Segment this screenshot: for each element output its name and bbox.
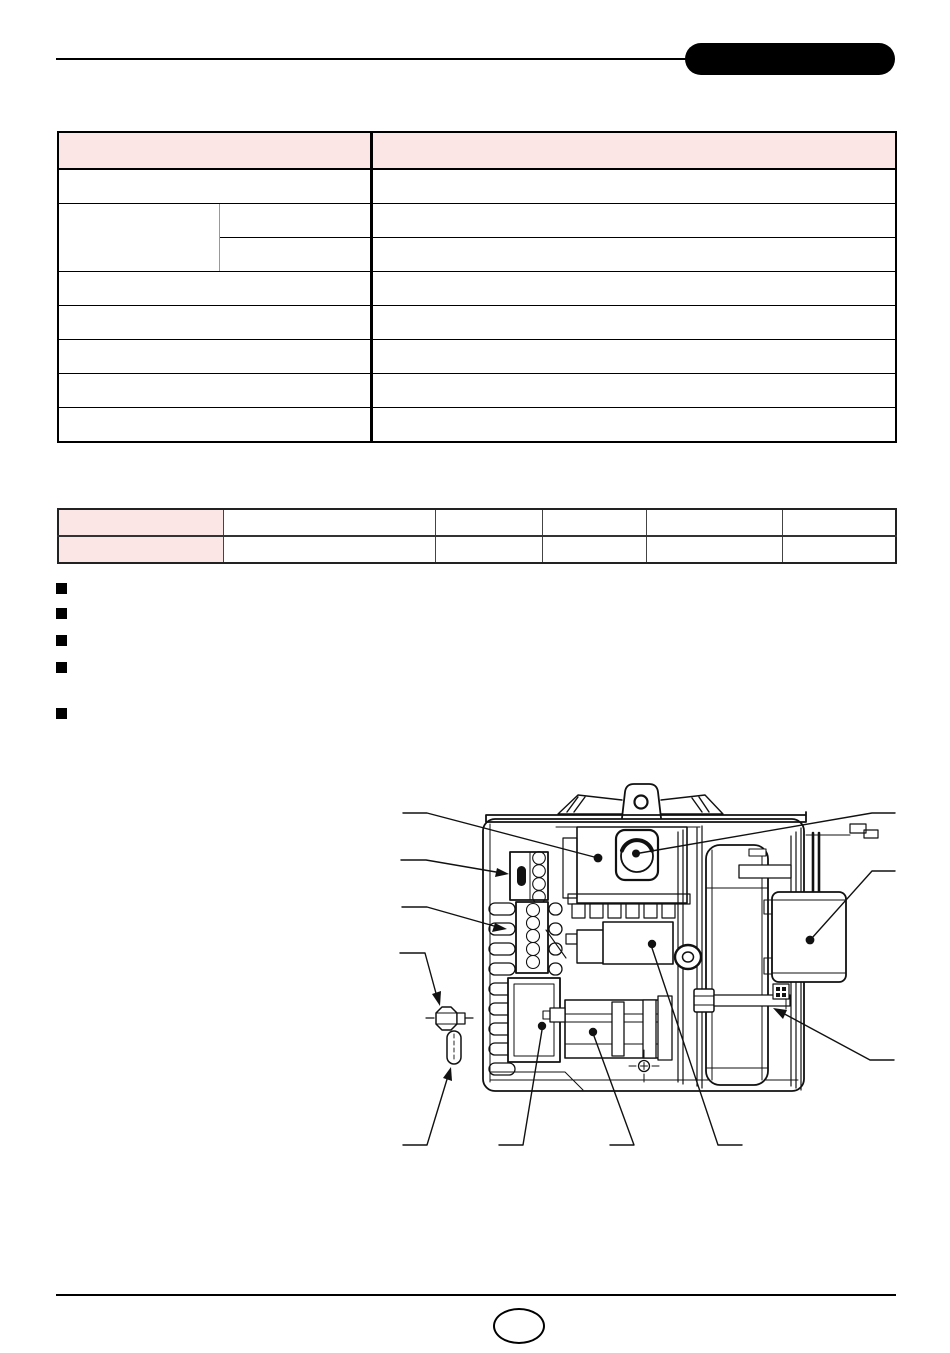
motor-cylinder <box>543 996 672 1060</box>
square-bullet-icon <box>56 583 67 594</box>
table-row <box>58 340 896 374</box>
mounting-bracket <box>558 784 723 818</box>
motor-top-box <box>563 827 687 903</box>
device-exploded-diagram <box>390 770 910 1160</box>
table-row <box>58 509 896 536</box>
spec-value-cell <box>371 306 896 340</box>
model-cell <box>542 509 646 536</box>
spec-value-cell <box>371 238 896 272</box>
table-row <box>58 272 896 306</box>
terminal-block-upper <box>510 852 548 904</box>
manual-page <box>0 0 950 1353</box>
model-cell <box>782 536 896 563</box>
spec-table <box>57 131 897 443</box>
table-row <box>58 204 896 238</box>
spec-value-cell <box>371 374 896 408</box>
footer-rule <box>56 1294 896 1296</box>
spec-group-label-cell <box>58 204 219 272</box>
list-item <box>56 662 77 673</box>
loose-capsule <box>447 1031 461 1064</box>
spec-header-left <box>58 132 371 169</box>
callout-line <box>401 860 496 872</box>
list-item <box>56 708 77 719</box>
callout-dot <box>538 1022 546 1030</box>
callout-arrowhead <box>773 1008 787 1019</box>
callout-arrowhead <box>495 868 509 877</box>
spec-value-cell <box>371 340 896 374</box>
table-row <box>58 169 896 204</box>
model-cell <box>646 509 782 536</box>
loose-bolt <box>426 1007 473 1030</box>
spec-value-cell <box>371 272 896 306</box>
callout-dot <box>589 1028 597 1036</box>
list-item <box>56 608 77 619</box>
callout-arrowhead <box>443 1067 452 1081</box>
top-right-fasteners <box>806 824 878 838</box>
table-row <box>58 408 896 443</box>
spec-sub-label-cell <box>219 238 371 272</box>
spec-value-cell <box>371 204 896 238</box>
spec-label-cell <box>58 374 371 408</box>
callout-dot <box>806 936 815 945</box>
callout-line <box>400 953 437 997</box>
model-cell <box>223 536 435 563</box>
list-item <box>56 635 77 646</box>
model-cell <box>435 509 542 536</box>
callout-arrowhead <box>432 991 441 1006</box>
header-rule <box>56 58 690 60</box>
square-bullet-icon <box>56 635 67 646</box>
control-box <box>764 892 846 982</box>
spec-header-row <box>58 132 896 169</box>
gearbox <box>566 922 673 964</box>
model-table <box>57 508 897 564</box>
square-bullet-icon <box>56 608 67 619</box>
model-cell <box>435 536 542 563</box>
spec-label-cell <box>58 408 371 443</box>
spec-label-cell <box>58 340 371 374</box>
terminal-block-lower <box>516 902 566 973</box>
spec-sub-label-cell <box>219 204 371 238</box>
model-header-cell <box>58 536 223 563</box>
table-row <box>58 536 896 563</box>
callout-dot <box>632 850 640 858</box>
callout-dot <box>594 854 603 863</box>
page-number-oval <box>493 1308 545 1344</box>
callout-line <box>403 1076 448 1145</box>
chain-sprocket <box>675 945 701 969</box>
callout-line <box>402 907 494 926</box>
table-row <box>58 306 896 340</box>
connector-block <box>773 984 789 999</box>
spec-value-cell <box>371 169 896 204</box>
bracket-hole <box>635 796 648 809</box>
list-item <box>56 583 77 594</box>
square-bullet-icon <box>56 662 67 673</box>
callout-dot <box>648 940 656 948</box>
callout-arrowhead <box>492 923 507 932</box>
model-cell <box>223 509 435 536</box>
table-row <box>58 374 896 408</box>
square-bullet-icon <box>56 708 67 719</box>
model-header-cell <box>58 509 223 536</box>
spec-label-cell <box>58 272 371 306</box>
spec-value-cell <box>371 408 896 443</box>
spec-label-cell <box>58 306 371 340</box>
model-cell <box>782 509 896 536</box>
section-title-badge <box>685 43 895 75</box>
spec-header-right <box>371 132 896 169</box>
model-cell <box>542 536 646 563</box>
spec-label-cell <box>58 169 371 204</box>
model-cell <box>646 536 782 563</box>
